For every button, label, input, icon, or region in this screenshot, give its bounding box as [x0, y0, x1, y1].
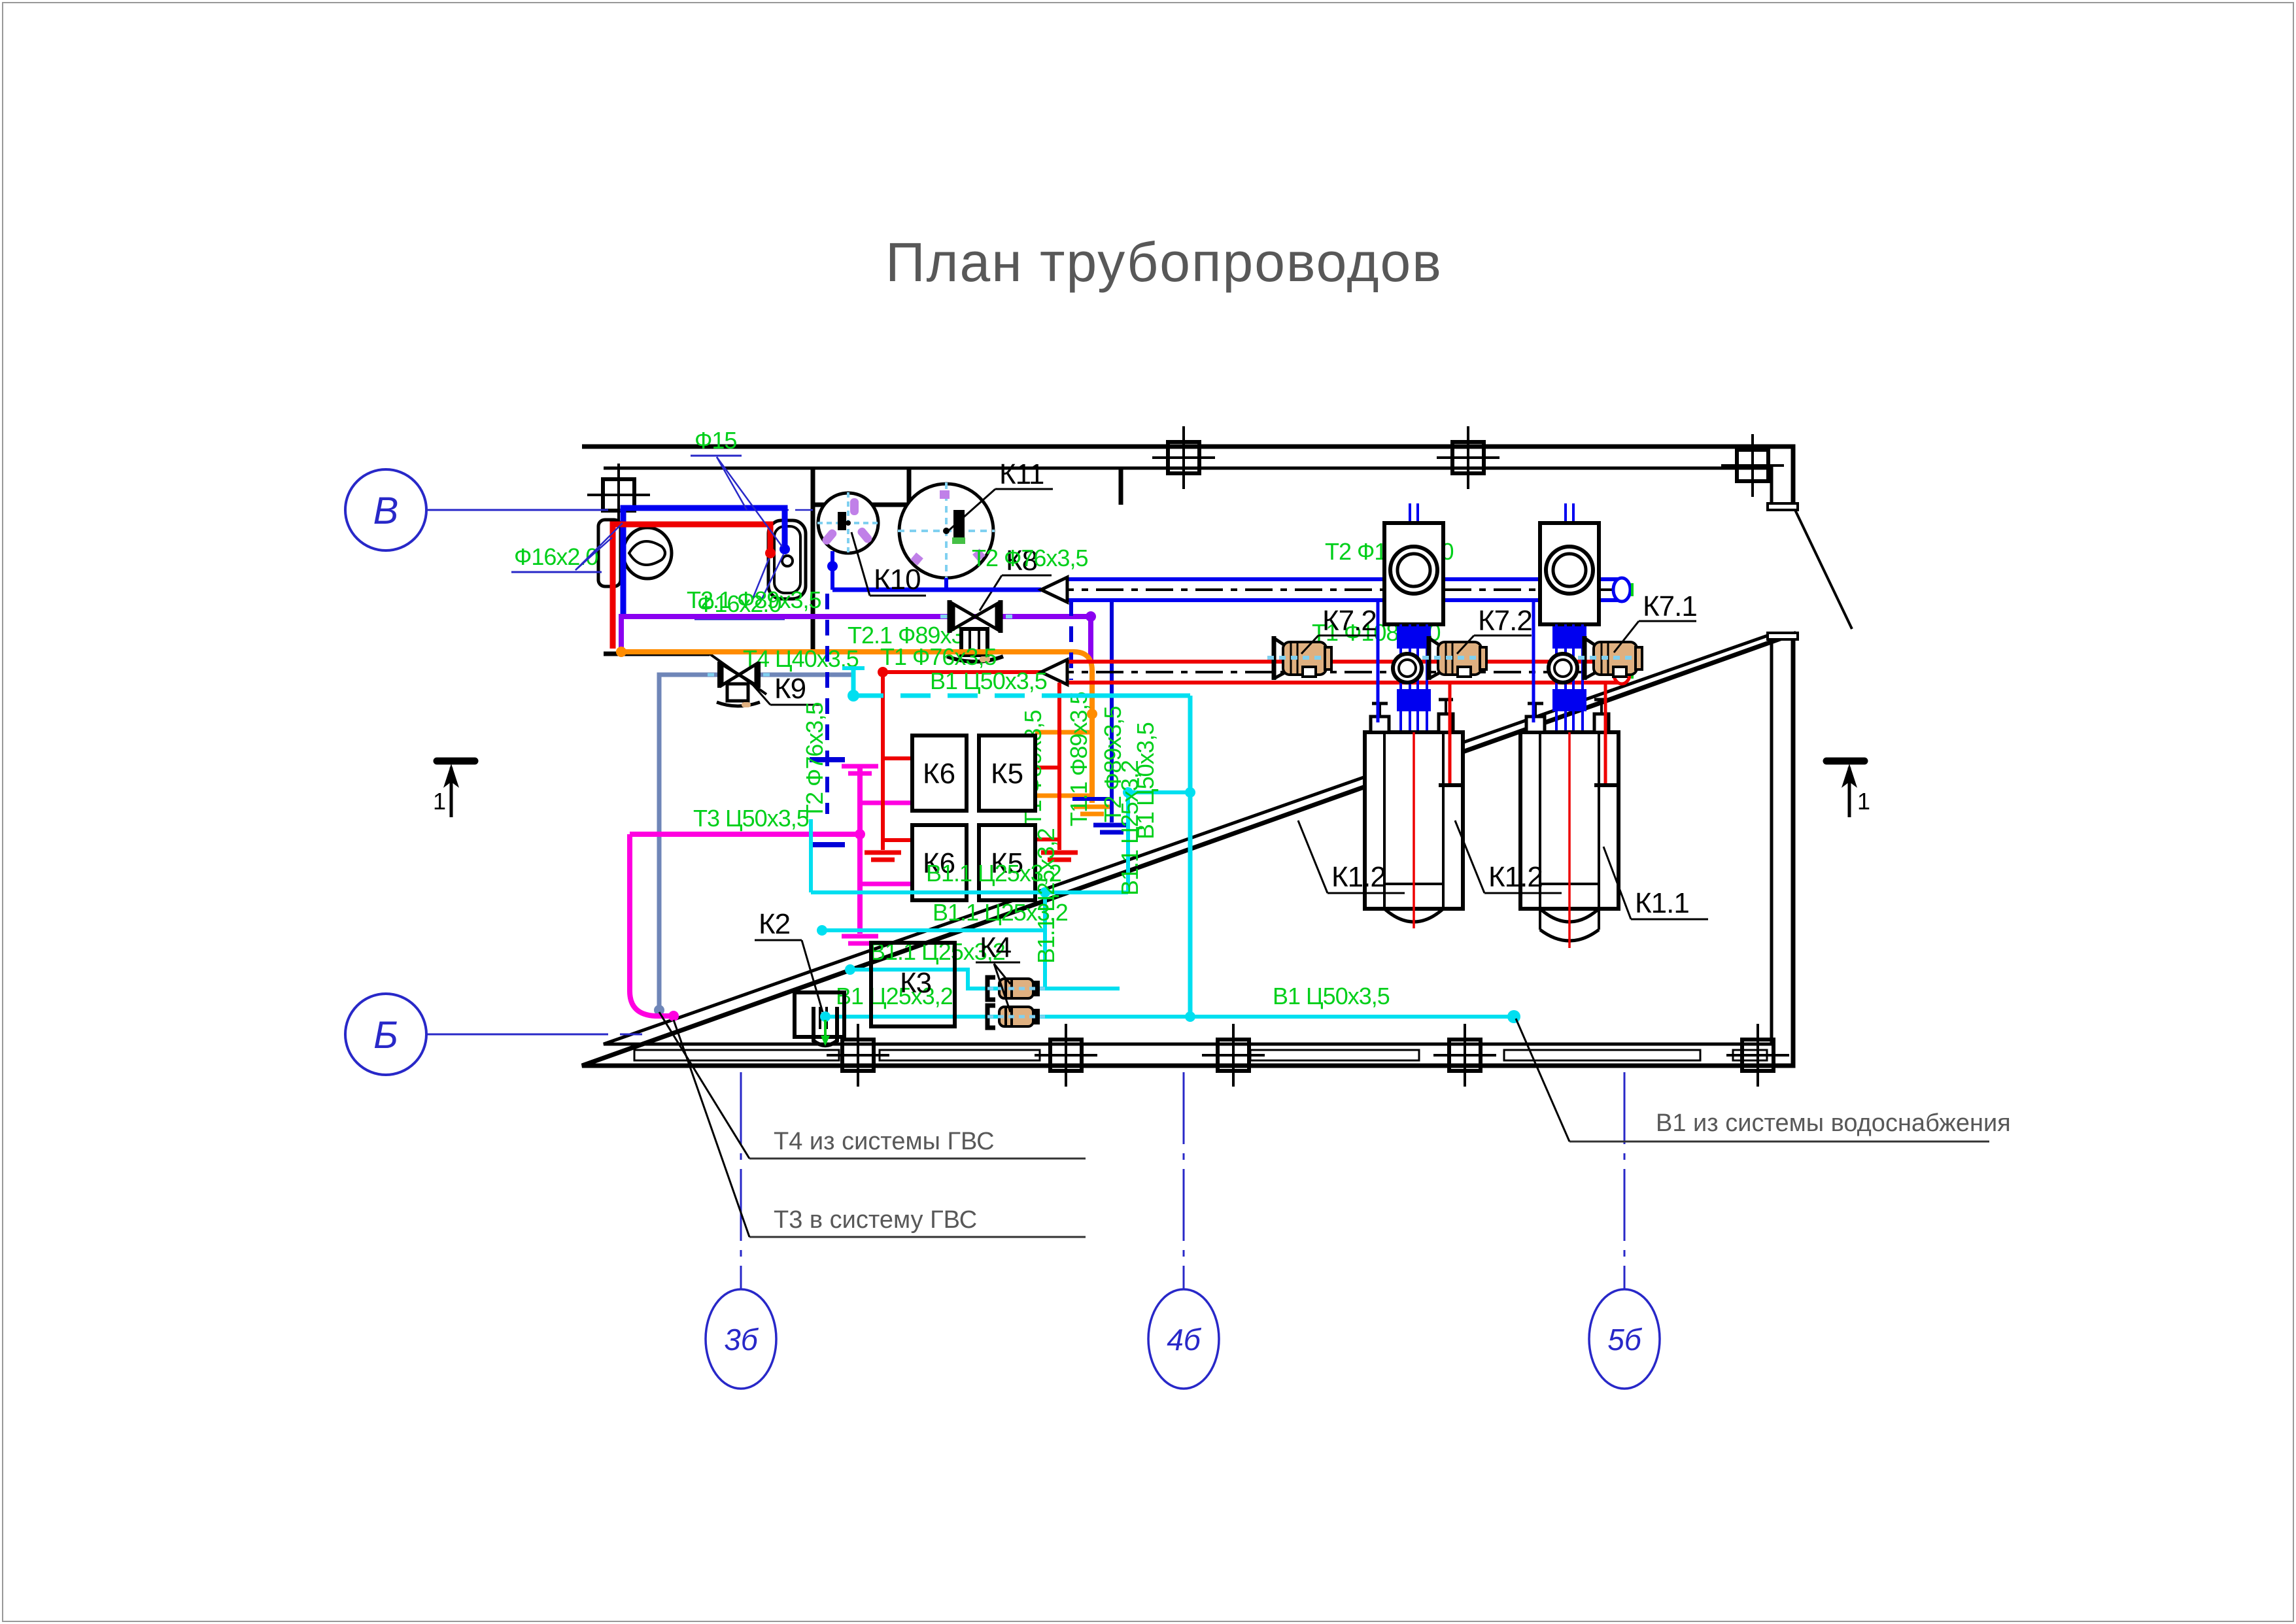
svg-text:Ф16х2.0: Ф16х2.0 [514, 543, 598, 570]
label-k6-1: К6 [923, 758, 955, 790]
label-t2-76-h: Т2 Ф76х3,5 [972, 545, 1088, 571]
label-t3-50: Т3 Ц50х3,5 [693, 805, 809, 832]
label-b1-50-a: В1 Ц50х3,5 [930, 668, 1047, 694]
drawing-page: План трубопроводов [0, 0, 2296, 1624]
label-t21-a: Т2.1 Ф89х3,5 [687, 586, 821, 613]
svg-text:К7.1: К7.1 [1643, 590, 1697, 622]
svg-text:К4: К4 [980, 932, 1012, 964]
axis-label-4b: 4б [1167, 1323, 1202, 1357]
label-t1-76: Т1 Ф76х3,5 [880, 643, 996, 670]
svg-text:К10: К10 [874, 564, 921, 596]
svg-text:Т3 в систему ГВС: Т3 в систему ГВС [774, 1206, 977, 1234]
toilet-fixture [598, 520, 672, 586]
label-t2-76-v: Т2 Ф76х3,5 [801, 703, 828, 819]
callout-b1: В1 из системы водоснабжения [1516, 1019, 2011, 1142]
wall-windows [634, 1050, 1767, 1060]
svg-text:К1.2: К1.2 [1331, 861, 1386, 893]
svg-text:Ф15: Ф15 [694, 427, 736, 454]
svg-text:Т4 из системы ГВС: Т4 из системы ГВС [774, 1128, 995, 1155]
label-k5-1: К5 [991, 758, 1023, 790]
axis-label-5b: 5б [1607, 1323, 1643, 1357]
svg-text:В1 из системы водоснабжения: В1 из системы водоснабжения [1656, 1109, 2011, 1137]
section-mark-right: 1 [1826, 761, 1870, 817]
axis-label-b: Б [373, 1014, 398, 1057]
axis-label-3b: 3б [724, 1323, 759, 1357]
door-leaf [1795, 510, 1852, 629]
label-k9: К9 [751, 673, 821, 705]
fan-k10 [817, 492, 879, 554]
svg-text:К7.2: К7.2 [1322, 605, 1377, 637]
svg-text:К2: К2 [759, 908, 790, 940]
svg-text:К1.1: К1.1 [1635, 887, 1689, 919]
pump-k7-3 [1578, 636, 1646, 680]
section-label: 1 [433, 788, 446, 815]
svg-text:К11: К11 [999, 458, 1044, 490]
svg-text:К9: К9 [774, 673, 806, 705]
label-f16-left: Ф16х2.0 [511, 523, 623, 572]
label-t11-89-v: Т1.1 Ф89х3,5 [1065, 692, 1092, 827]
label-k2: К2 [755, 908, 823, 1012]
label-b11-25-v1: В1.1 Ц25х3,2 [1116, 760, 1143, 896]
label-k3: К3 [900, 967, 931, 999]
page-title: План трубопроводов [885, 231, 1443, 293]
label-b11-h2: В1.1 Ц25х3,2 [933, 899, 1068, 926]
piping-plan-canvas: План трубопроводов [0, 0, 2296, 1624]
label-b1-50-b: В1 Ц50х3,5 [1273, 983, 1390, 1009]
svg-text:К7.2: К7.2 [1478, 605, 1532, 637]
svg-text:К1.2: К1.2 [1488, 861, 1543, 893]
callout-t4: Т4 из системы ГВС [659, 1012, 1086, 1159]
label-b11-h1: В1.1 Ц25х3,2 [926, 860, 1061, 887]
section-mark-left: 1 [433, 761, 475, 817]
axis-label-v: В [373, 490, 399, 532]
label-b11-25-v2: В1.1 Ц25х3,2 [1033, 828, 1059, 964]
label-k4: К4 [976, 932, 1020, 1012]
label-b1-25-h: В1 Ц25х3,2 [836, 983, 953, 1009]
section-label: 1 [1857, 788, 1870, 815]
